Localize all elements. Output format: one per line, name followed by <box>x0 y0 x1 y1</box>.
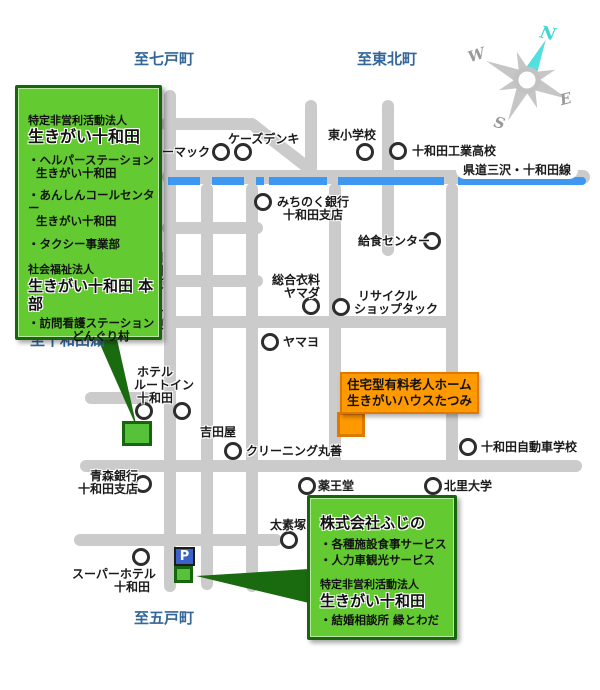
poi-circle-towada-technical-hs <box>389 142 407 160</box>
fujino-item: ・人力車観光サービス <box>320 554 454 567</box>
poi-label-taisozuka: 太素塚 <box>270 519 306 532</box>
npo-org-name2: 生きがい十和田 本部 <box>28 277 159 313</box>
fujino-org-name: 生きがい十和田 <box>320 592 454 610</box>
prefectural-route-segment <box>256 177 264 185</box>
npo-org-type: 特定非営利活動法人 <box>28 114 159 127</box>
poi-label-line: 十和田 <box>137 392 194 405</box>
city-map: 県道三沢・十和田線 旧国道4号線 P ホーマック ケーズデンキ 東小学校 十和田… <box>0 0 600 690</box>
prefectural-route-segment <box>168 177 200 185</box>
poi-label-hotel-route-inn: ホテル ルートイン 十和田 <box>134 366 194 405</box>
marker-ikigai-house-tatsumi-site <box>337 412 365 437</box>
poi-label-cleaning-maruzen: クリーニング丸善 <box>246 445 342 458</box>
tatsumi-callout: 住宅型有料老人ホーム 生きがいハウスたつみ <box>340 372 479 414</box>
poi-label-michinoku-bank: みちのく銀行 十和田支店 <box>277 196 349 222</box>
parking-marker: P <box>174 547 195 566</box>
road <box>305 100 317 180</box>
poi-circle-michinoku-bank <box>254 193 272 211</box>
poi-label-recycle-shop-tack: リサイクル ショップタック <box>354 290 438 316</box>
poi-label-yakuodo: 薬王堂 <box>318 480 354 493</box>
poi-label-line: 十和田支店 <box>68 483 138 496</box>
npo-item: ・あんしんコールセンター <box>28 189 159 215</box>
direction-tohokumachi: 至東北町 <box>357 48 417 69</box>
npo-org-name: 生きがい十和田 <box>28 128 159 146</box>
compass-e-label: E <box>558 89 573 109</box>
poi-label-line: ヤマダ <box>252 287 320 300</box>
poi-label-super-hotel: スーパーホテル 十和田 <box>72 568 150 594</box>
compass-s-label: S <box>492 113 507 133</box>
poi-label-towada-technical-hs: 十和田工業高校 <box>412 145 496 158</box>
poi-label-yoshidaya: 吉田屋 <box>200 426 236 439</box>
road-old-route4 <box>164 90 176 592</box>
poi-label-line: 十和田 <box>72 581 150 594</box>
poi-circle-higashi-elementary <box>356 143 374 161</box>
npo-item: 生きがい十和田 <box>36 167 159 180</box>
road <box>446 183 458 468</box>
marker-fujino-site <box>174 566 193 583</box>
road <box>201 183 213 590</box>
npo-info-box: 特定非営利活動法人 生きがい十和田 ・ヘルパーステーション 生きがい十和田 ・あ… <box>15 85 162 340</box>
poi-label-ks-denki: ケーズデンキ <box>228 133 299 146</box>
compass-n-label: N <box>538 23 557 46</box>
npo-item: 生きがい十和田 <box>36 215 159 228</box>
direction-shichinohe: 至七戸町 <box>134 48 194 69</box>
compass-star <box>467 20 587 140</box>
marker-ikigai-towada-site <box>122 421 152 446</box>
tatsumi-callout-line2: 生きがいハウスたつみ <box>347 393 472 409</box>
tatsumi-callout-line1: 住宅型有料老人ホーム <box>347 377 472 393</box>
npo-item: どんぐり村 <box>72 330 159 343</box>
direction-gonohe: 至五戸町 <box>134 607 194 628</box>
fujino-item: ・結婚相談所 縁とわだ <box>320 614 454 627</box>
poi-circle-kitasato-univ <box>424 477 442 495</box>
prefectural-route-segment <box>212 177 244 185</box>
poi-label-higashi-elementary: 東小学校 <box>328 129 376 142</box>
poi-circle-taisozuka <box>280 531 298 549</box>
poi-circle-super-hotel <box>132 548 150 566</box>
fujino-info-box: 株式会社ふじの ・各種施設食事サービス ・人力車観光サービス 特定非営利活動法人… <box>307 495 457 640</box>
poi-label-kitasato-univ: 北里大学 <box>444 480 492 493</box>
poi-circle-yakuodo <box>298 477 316 495</box>
poi-label-kyushoku-center: 給食センター <box>358 235 430 248</box>
poi-label-yamayo: ヤマヨ <box>283 336 319 349</box>
poi-label-line: ショップタック <box>354 303 438 316</box>
fujino-name: 株式会社ふじの <box>320 514 454 532</box>
road-label-prefectural: 県道三沢・十和田線 <box>456 160 578 179</box>
poi-circle-yamayo <box>261 333 279 351</box>
compass-rose <box>462 12 592 148</box>
npo-org-type2: 社会福祉法人 <box>28 263 159 276</box>
poi-label-line: 十和田支店 <box>283 209 349 222</box>
poi-label-towada-driving-school: 十和田自動車学校 <box>481 441 577 454</box>
compass-hub <box>512 65 541 94</box>
road <box>246 183 258 592</box>
compass-w-label: W <box>466 44 488 66</box>
npo-item: ・タクシー事業部 <box>28 238 159 251</box>
prefectural-route-segment <box>269 177 327 185</box>
poi-circle-recycle-shop-tack <box>332 298 350 316</box>
poi-circle-cleaning-maruzen <box>224 442 242 460</box>
poi-label-yamada: 総合衣料 ヤマダ <box>252 274 320 300</box>
prefectural-route-segment <box>338 177 444 185</box>
poi-circle-towada-driving-school <box>459 438 477 456</box>
fujino-item: ・各種施設食事サービス <box>320 538 454 551</box>
fujino-org-type: 特定非営利活動法人 <box>320 578 454 591</box>
poi-label-aomori-bank: 青森銀行 十和田支店 <box>68 470 138 496</box>
